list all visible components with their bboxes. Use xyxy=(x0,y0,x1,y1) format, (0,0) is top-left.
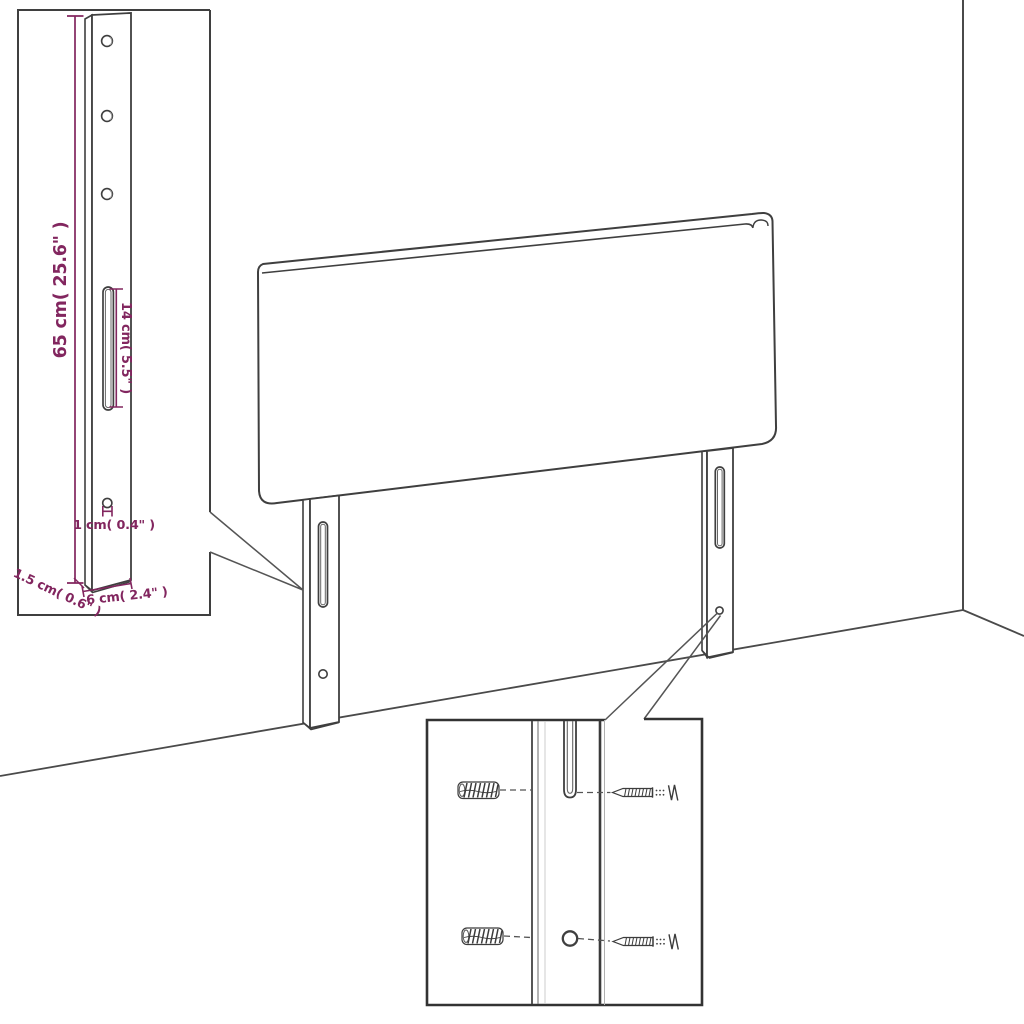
screw-icon-top xyxy=(613,785,678,801)
mounting-slot-inner xyxy=(567,721,572,793)
floor-line-right xyxy=(963,610,1024,636)
headboard-panel xyxy=(258,213,776,504)
bracket-side-face xyxy=(85,15,92,591)
bracket-slot xyxy=(103,287,113,410)
leader-dashed-lines xyxy=(500,790,611,941)
left-leg xyxy=(303,496,339,730)
screw-icon-bottom xyxy=(613,934,678,950)
left-leg-slot xyxy=(319,522,328,607)
right-leg xyxy=(702,448,733,658)
wall-plug-icon-bottom xyxy=(462,928,503,945)
left-leg-side-face xyxy=(303,499,310,728)
dimension-height-label: 65 cm( 25.6" ) xyxy=(51,222,71,359)
bracket-inset-callout-lines xyxy=(210,512,303,590)
mounting-detail-inset xyxy=(427,613,721,1005)
mounting-hole xyxy=(563,931,577,945)
mounting-slot xyxy=(564,721,576,798)
dimension-hole-label: 1 cm( 0.4" ) xyxy=(73,518,155,533)
wall-plug-icon-top xyxy=(458,782,499,799)
mounting-leg-strip xyxy=(532,720,605,1005)
right-leg-slot xyxy=(715,467,724,548)
floor-line-left xyxy=(0,610,963,776)
bracket-small-hole xyxy=(103,498,112,507)
left-leg-hole xyxy=(319,670,327,678)
diagram-canvas: 65 cm( 25.6" ) 14 cm( 5.5" ) 1 cm( 0.4" … xyxy=(0,0,1024,1024)
headboard-outline xyxy=(258,213,776,504)
dimension-slot-label: 14 cm( 5.5" ) xyxy=(118,302,133,394)
